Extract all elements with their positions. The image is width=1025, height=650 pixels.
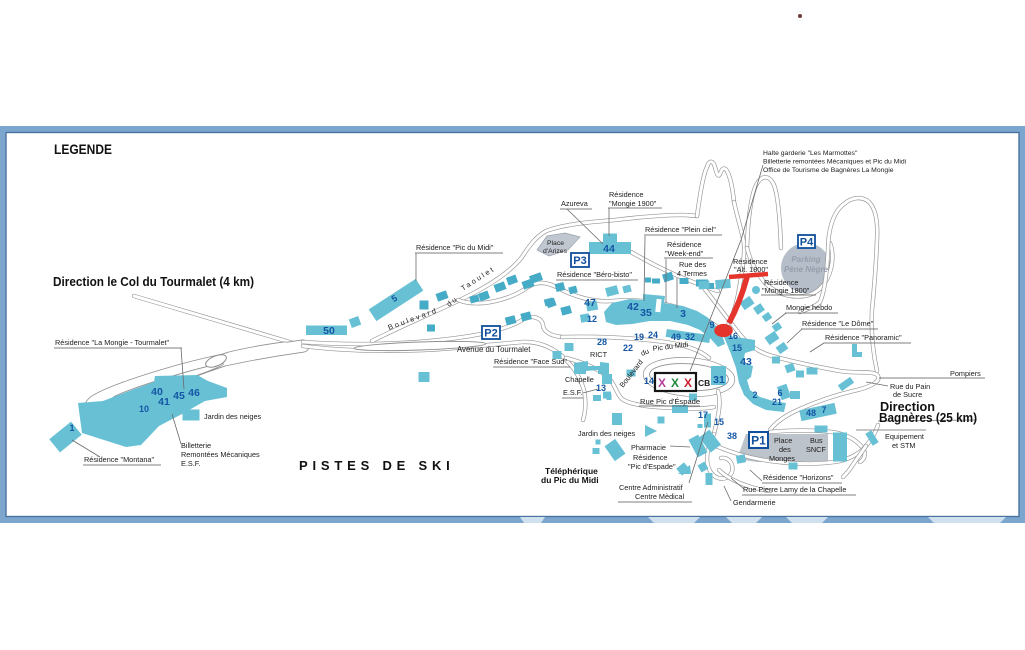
svg-text:Rue Pic d'Éspade: Rue Pic d'Éspade: [640, 397, 700, 406]
svg-text:Résidence: Résidence: [609, 190, 643, 199]
svg-text:3: 3: [680, 308, 686, 320]
svg-text:44: 44: [603, 243, 615, 255]
svg-text:48: 48: [806, 408, 816, 418]
svg-text:de Sucre: de Sucre: [893, 390, 922, 399]
svg-text:Office de Tourisme de Bagnères: Office de Tourisme de Bagnères La Mongie: [763, 167, 894, 174]
svg-text:Equipement: Equipement: [885, 432, 924, 441]
svg-text:9: 9: [709, 320, 714, 330]
svg-text:22: 22: [623, 343, 633, 353]
svg-text:E.S.F.: E.S.F.: [563, 388, 582, 397]
svg-text:7: 7: [821, 405, 826, 415]
svg-text:du Pic du Midi: du Pic du Midi: [541, 475, 599, 485]
svg-text:Billetterie: Billetterie: [181, 441, 211, 450]
svg-text:P2: P2: [484, 328, 497, 340]
svg-text:Résidence "Montana": Résidence "Montana": [84, 455, 154, 464]
svg-text:PISTES DE SKI: PISTES DE SKI: [299, 458, 455, 473]
svg-text:Billetterie remontées Mécaniqu: Billetterie remontées Mécaniques et Pic …: [763, 159, 907, 166]
svg-text:Pharmacie: Pharmacie: [631, 443, 666, 452]
svg-text:32: 32: [685, 332, 695, 342]
svg-text:des: des: [779, 445, 791, 454]
svg-text:"Week-end": "Week-end": [665, 249, 704, 258]
svg-text:45: 45: [173, 390, 185, 402]
svg-text:Résidence "Pic du Midi": Résidence "Pic du Midi": [416, 243, 494, 252]
svg-text:43: 43: [740, 356, 752, 368]
svg-text:CB: CB: [698, 378, 710, 388]
svg-text:Bus: Bus: [810, 436, 823, 445]
svg-text:Centre Mèdical: Centre Mèdical: [635, 492, 684, 501]
svg-text:50: 50: [323, 325, 335, 337]
svg-text:31: 31: [713, 374, 725, 386]
svg-text:15: 15: [732, 343, 742, 353]
svg-text:Résidence: Résidence: [667, 240, 701, 249]
svg-text:Halte garderie "Les Marmottes": Halte garderie "Les Marmottes": [763, 150, 858, 157]
svg-text:Gendarmerie: Gendarmerie: [733, 498, 776, 507]
svg-text:17: 17: [698, 410, 708, 420]
svg-text:Résidence "Plein ciel": Résidence "Plein ciel": [645, 225, 716, 234]
svg-text:Résidence "La Mongie - Tourmal: Résidence "La Mongie - Tourmalet": [55, 338, 170, 347]
svg-text:10: 10: [139, 404, 149, 414]
svg-text:d'Arizes: d'Arizes: [543, 248, 568, 255]
svg-text:28: 28: [597, 337, 607, 347]
svg-text:49: 49: [671, 332, 681, 342]
svg-text:LEGENDE: LEGENDE: [54, 142, 112, 157]
svg-text:Monges: Monges: [769, 454, 795, 463]
svg-text:41: 41: [158, 396, 170, 408]
svg-text:"Mongie 1900": "Mongie 1900": [609, 199, 657, 208]
svg-text:12: 12: [587, 314, 597, 324]
svg-text:46: 46: [188, 387, 200, 399]
svg-text:24: 24: [648, 330, 658, 340]
svg-text:Résidence "Face Sud": Résidence "Face Sud": [494, 357, 567, 366]
svg-text:4 Termes: 4 Termes: [677, 269, 707, 278]
svg-text:Résidence "Le Dôme": Résidence "Le Dôme": [802, 319, 874, 328]
svg-text:Centre Administratif: Centre Administratif: [619, 483, 684, 492]
svg-text:"Pic d'Espade": "Pic d'Espade": [628, 462, 676, 471]
svg-text:Résidence: Résidence: [633, 453, 667, 462]
svg-text:Bagnères (25 km): Bagnères (25 km): [879, 411, 977, 425]
svg-text:P3: P3: [573, 255, 586, 267]
svg-text:X: X: [684, 376, 692, 390]
svg-text:Pompiers: Pompiers: [950, 369, 981, 378]
svg-text:Rue Pierre Lamy de la Chapelle: Rue Pierre Lamy de la Chapelle: [743, 485, 846, 494]
svg-text:P4: P4: [800, 237, 814, 249]
svg-text:21: 21: [772, 397, 782, 407]
svg-text:Résidence "Panoramic": Résidence "Panoramic": [825, 333, 902, 342]
svg-text:47: 47: [584, 297, 596, 309]
svg-text:"Mongie 1800": "Mongie 1800": [762, 286, 810, 295]
svg-text:Résidence "Horizons": Résidence "Horizons": [763, 473, 834, 482]
svg-text:1: 1: [69, 423, 74, 433]
svg-text:14: 14: [644, 376, 654, 386]
svg-text:P1: P1: [751, 434, 766, 448]
svg-text:RICT: RICT: [590, 350, 608, 359]
svg-text:Remontées Mécaniques: Remontées Mécaniques: [181, 450, 260, 459]
svg-text:X: X: [671, 376, 679, 390]
svg-text:Chapelle: Chapelle: [565, 375, 594, 384]
svg-text:13: 13: [596, 383, 606, 393]
svg-text:et STM: et STM: [892, 441, 916, 450]
svg-text:Résidence "Béro-bisto": Résidence "Béro-bisto": [557, 270, 632, 279]
svg-text:Parking: Parking: [791, 255, 820, 264]
svg-text:Rue des: Rue des: [679, 260, 707, 269]
svg-text:38: 38: [727, 431, 737, 441]
svg-text:Direction le Col du Tourmalet: Direction le Col du Tourmalet (4 km): [53, 275, 254, 289]
svg-text:SNCF: SNCF: [806, 445, 826, 454]
svg-text:Azureva: Azureva: [561, 199, 589, 208]
svg-text:Mongie hebdo: Mongie hebdo: [786, 303, 832, 312]
svg-text:35: 35: [640, 307, 652, 319]
svg-text:42: 42: [627, 301, 639, 313]
svg-text:E.S.F.: E.S.F.: [181, 459, 200, 468]
svg-text:Pène Nègre: Pène Nègre: [784, 265, 829, 274]
svg-text:Jardin des neiges: Jardin des neiges: [204, 412, 262, 421]
svg-text:Place: Place: [774, 436, 792, 445]
svg-text:19: 19: [634, 332, 644, 342]
svg-text:X: X: [658, 376, 666, 390]
svg-text:15: 15: [714, 417, 724, 427]
svg-text:Jardin des neiges: Jardin des neiges: [578, 429, 636, 438]
svg-text:2: 2: [752, 390, 757, 400]
svg-text:Avenue du Tourmalet: Avenue du Tourmalet: [457, 345, 531, 354]
svg-text:Place: Place: [547, 240, 564, 247]
